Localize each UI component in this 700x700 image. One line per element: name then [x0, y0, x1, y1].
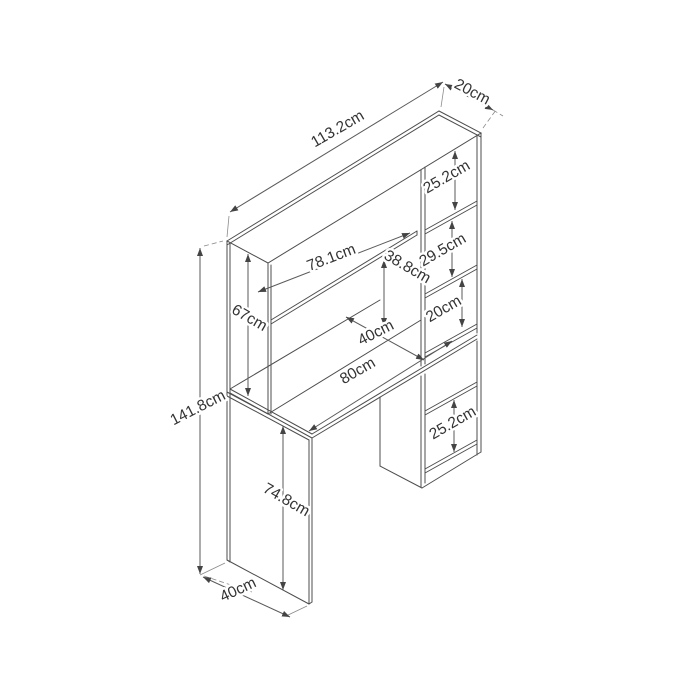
dim-compartment-bottom: 25.2cm: [426, 403, 479, 443]
dim-top-depth: 20cm: [451, 76, 492, 109]
dim-total-width: 113.2cm: [308, 107, 367, 151]
dim-total-height: 141.8cm: [168, 387, 229, 429]
dim-base-depth: 40cm: [217, 574, 259, 605]
dim-compartment-mid: 29.5cm: [416, 230, 469, 270]
dim-shelf-width: 78.1cm: [305, 241, 359, 275]
hutch-bottom-edge: [268, 320, 421, 414]
dim-hutch-height: 67cm: [229, 301, 270, 335]
dim-compartment-small: 20cm: [423, 292, 464, 326]
dimension-lines: [200, 82, 493, 617]
dim-desk-depth: 40cm: [355, 317, 396, 349]
dim-leg-height: 74.8cm: [260, 480, 313, 520]
furniture-dimension-diagram: 113.2cm 20cm 25.2cm 78.1cm 38.8cm 29.5cm…: [0, 0, 700, 700]
technical-drawing-page: 113.2cm 20cm 25.2cm 78.1cm 38.8cm 29.5cm…: [0, 0, 700, 700]
dim-compartment-top: 25.2cm: [420, 157, 473, 197]
